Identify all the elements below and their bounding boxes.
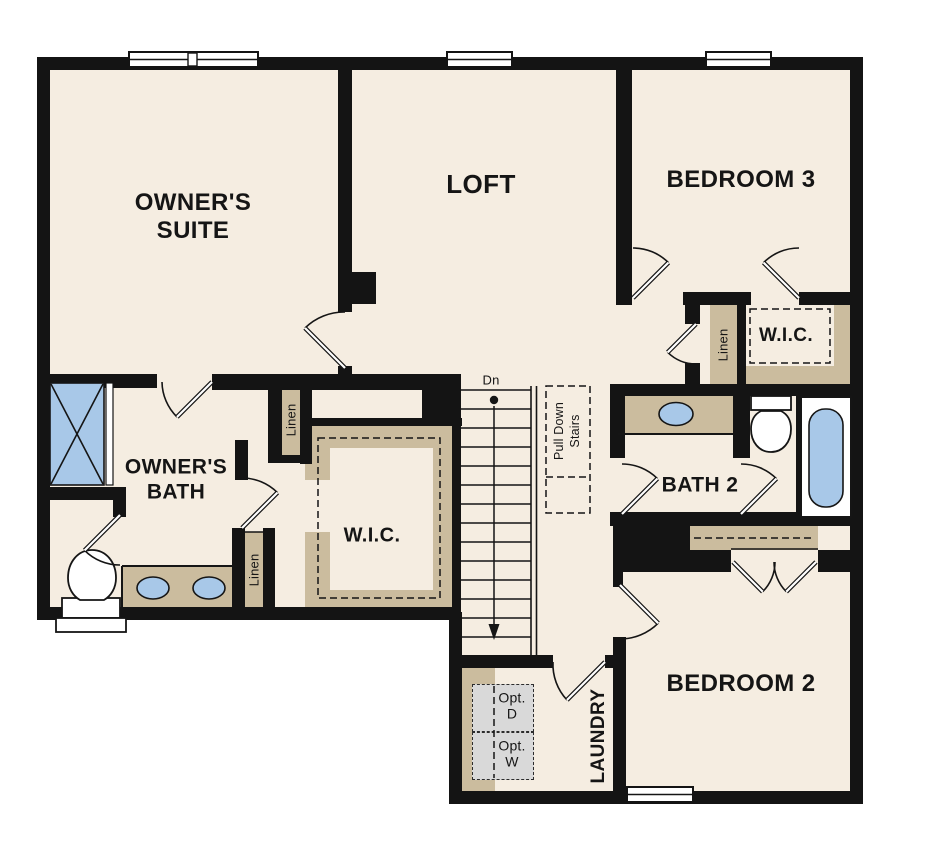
- door-bedroom2-closet-right: [774, 562, 816, 592]
- room-label-loft: LOFT: [446, 169, 515, 199]
- laundry-label-opt-washer: Opt. W: [496, 738, 528, 771]
- door-bedroom2: [620, 585, 658, 639]
- toilet-owners-base: [56, 618, 126, 632]
- room-label-laundry: LAUNDRY: [588, 689, 610, 784]
- toilet-bath2-tank: [751, 396, 791, 410]
- door-bath2-inner: [741, 464, 776, 514]
- closet-label-linen-hall: Linen: [715, 329, 730, 362]
- room-label-owners-wic: W.I.C.: [344, 524, 401, 547]
- door-bedroom3-wic: [764, 248, 799, 298]
- door-owners-suite: [305, 312, 345, 368]
- stair-treads: [461, 390, 531, 656]
- sink-bath2: [659, 403, 693, 426]
- room-label-bedroom3: BEDROOM 3: [667, 166, 816, 194]
- stair-label-dn: Dn: [482, 372, 499, 387]
- floor-plan: OWNER'S SUITE LOFT BEDROOM 3 OWNER'S BAT…: [0, 0, 943, 849]
- room-label-bath2: BATH 2: [655, 474, 745, 499]
- closet-label-linen-upper: Linen: [283, 404, 298, 437]
- room-label-owners-suite: OWNER'S SUITE: [103, 189, 283, 245]
- owners-wic-shelf-dashed: [318, 438, 440, 598]
- room-label-owners-bath: OWNER'S BATH: [101, 455, 251, 504]
- sink-owners-left: [137, 577, 169, 599]
- bathtub-basin: [809, 409, 843, 507]
- laundry-label-opt-dryer: Opt. D: [496, 690, 528, 723]
- toilet-bath2-bowl: [751, 411, 791, 452]
- door-bedroom2-closet-left: [733, 562, 775, 592]
- stair-direction-dot: [490, 396, 498, 404]
- sink-owners-right: [193, 577, 225, 599]
- toilet-owners-tank: [62, 598, 120, 618]
- symbols-overlay: [0, 0, 943, 849]
- door-bedroom3-entry: [633, 248, 668, 298]
- window-mullion: [188, 53, 197, 66]
- room-label-bedroom2: BEDROOM 2: [667, 670, 816, 698]
- door-linen-hall: [668, 324, 696, 364]
- room-label-bedroom3-wic: W.I.C.: [759, 325, 813, 347]
- door-owners-bath: [162, 382, 212, 417]
- stair-label-pull-down: Pull Down Stairs: [551, 387, 584, 475]
- closet-label-linen-lower: Linen: [246, 554, 261, 587]
- stair-rail: [531, 386, 537, 660]
- door-bath2-entry: [622, 464, 657, 514]
